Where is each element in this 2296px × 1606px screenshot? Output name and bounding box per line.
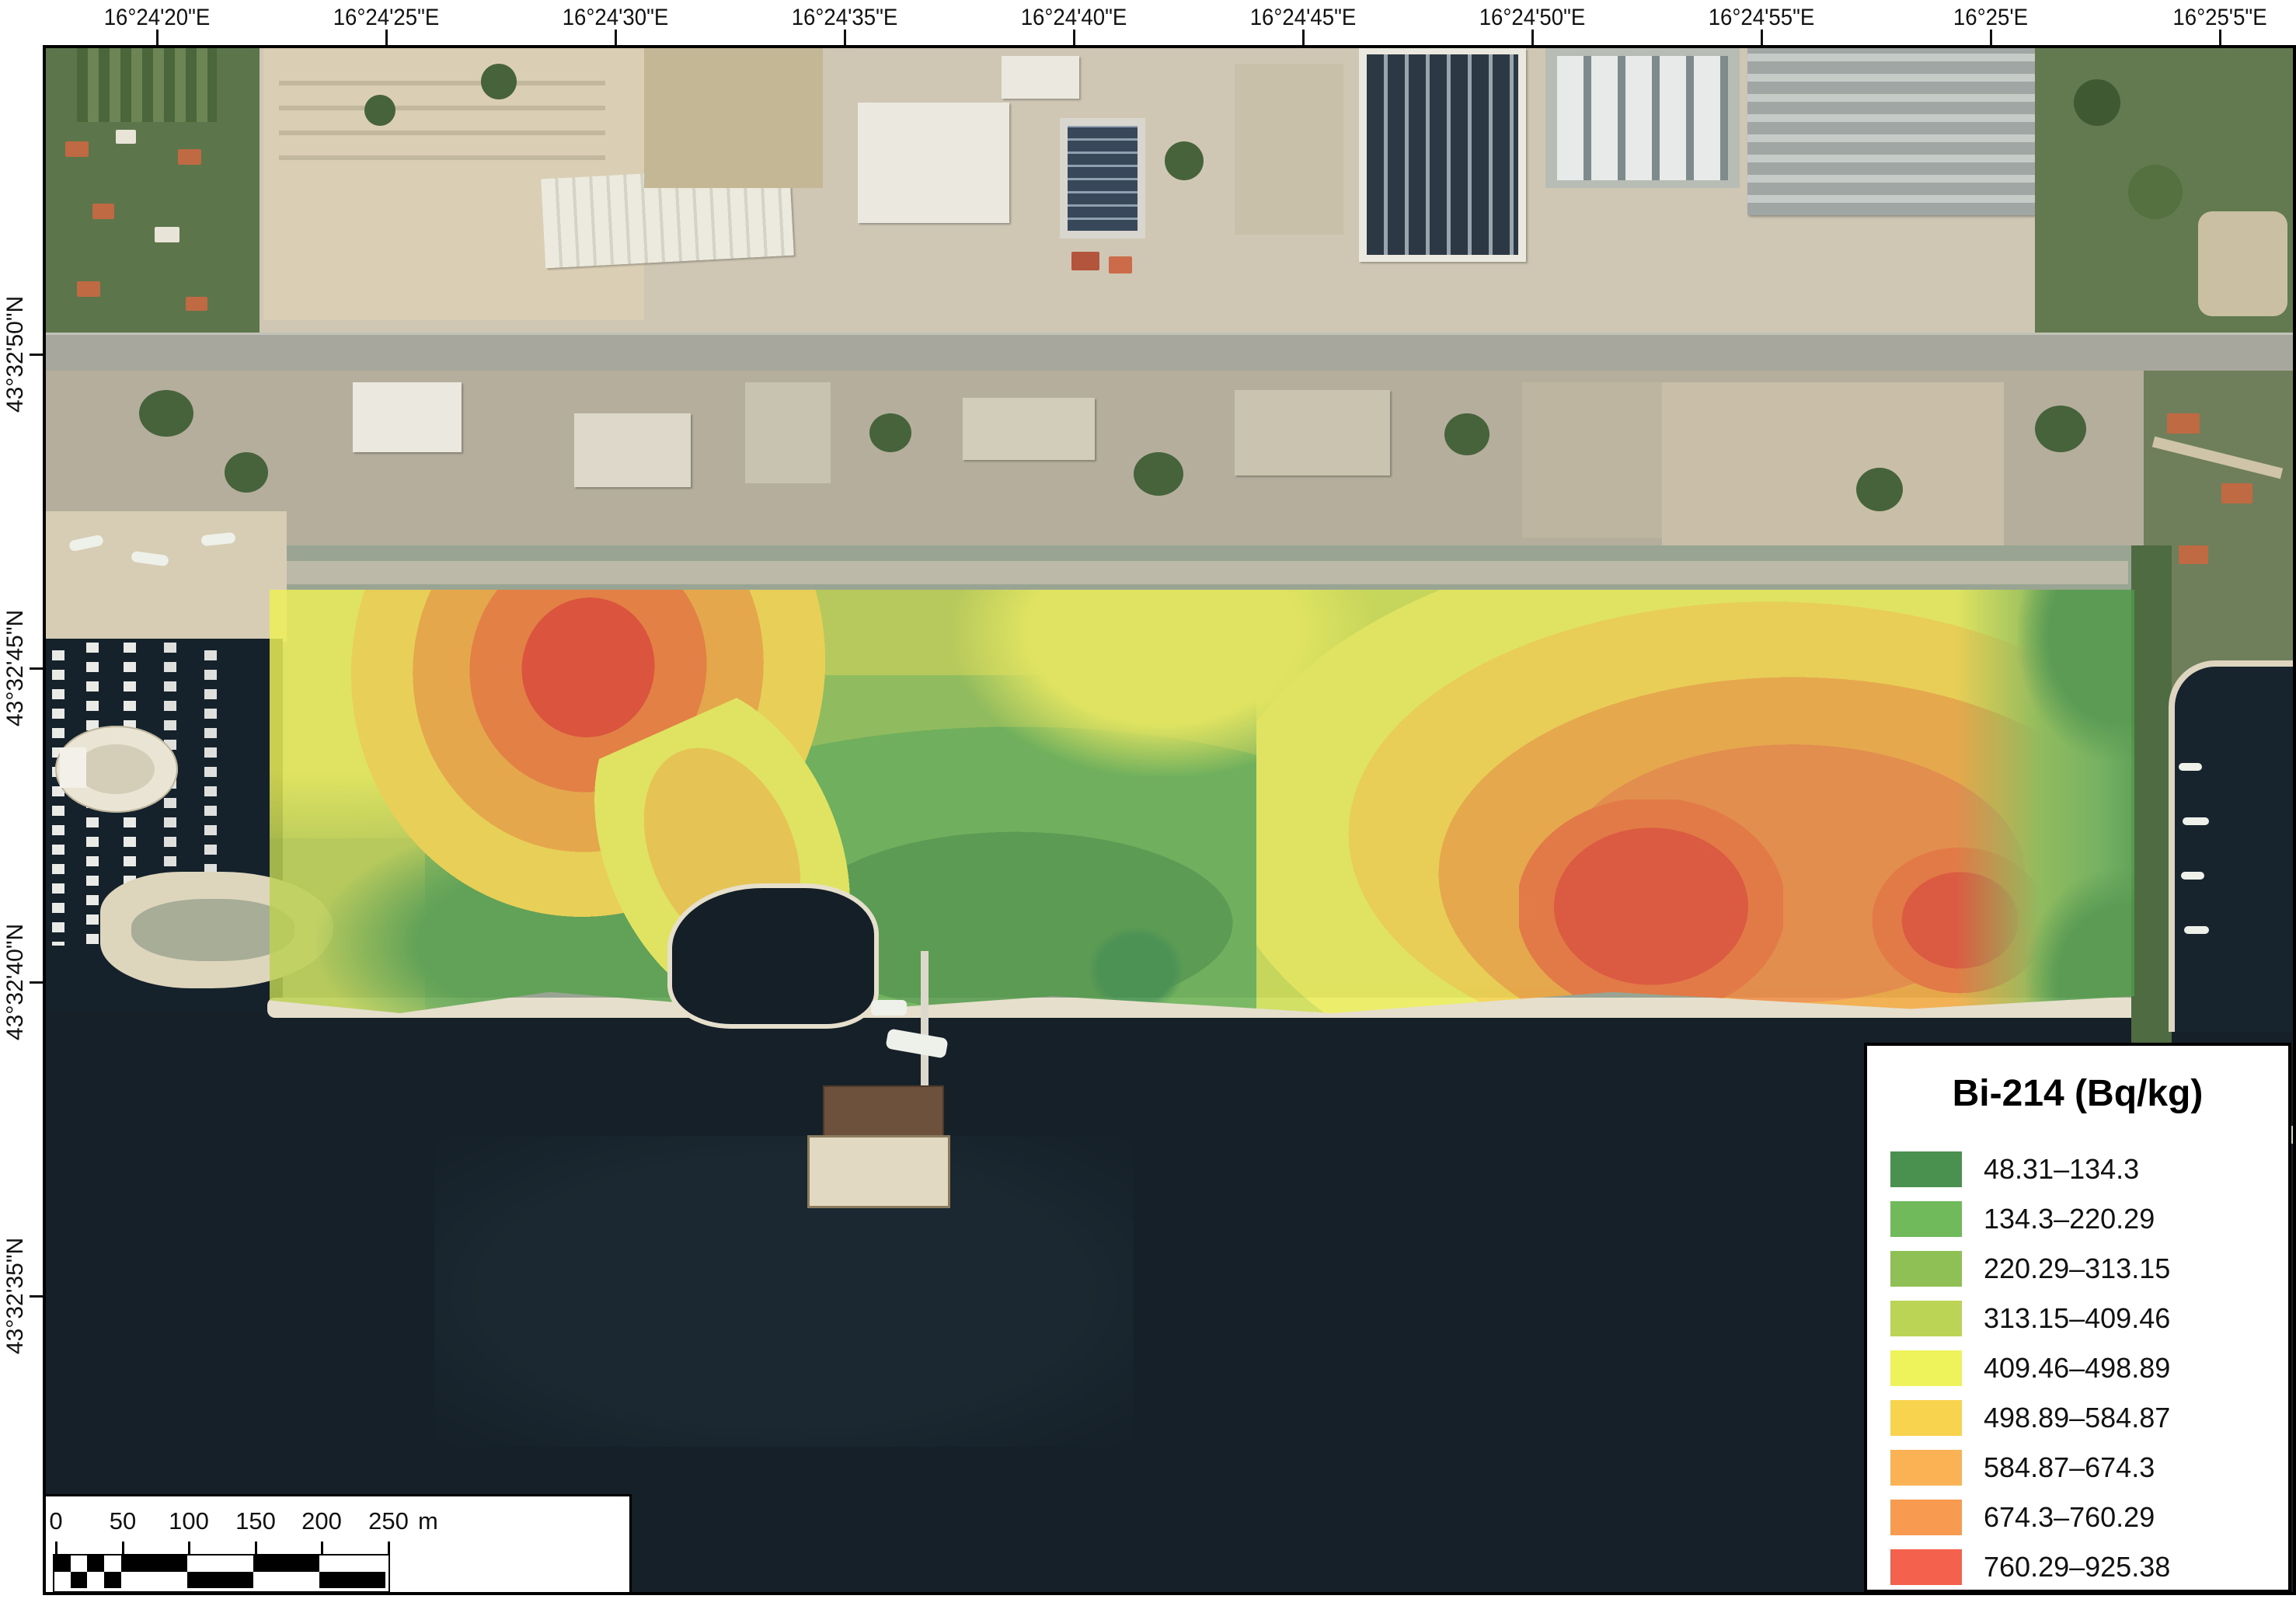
satellite-detail xyxy=(2219,30,2221,47)
satellite-detail xyxy=(2128,165,2183,219)
satellite-detail xyxy=(353,382,462,452)
map-canvas: 0 50 100 150 200 250 m xyxy=(43,45,2296,1595)
floating-dock xyxy=(823,1085,944,1138)
satellite-detail xyxy=(1990,30,1992,47)
satellite-detail xyxy=(319,1572,385,1588)
legend-swatch xyxy=(1890,1500,1962,1535)
axis-label: 16°24'50"E xyxy=(1479,5,1586,31)
satellite-detail xyxy=(1761,30,1763,47)
axis-label: 16°24'30"E xyxy=(563,5,669,31)
satellite-detail xyxy=(2179,763,2202,771)
satellite-detail xyxy=(385,30,388,47)
satellite-detail xyxy=(77,48,217,122)
axis-label: 16°24'35"E xyxy=(792,5,898,31)
satellite-detail xyxy=(1073,30,1075,47)
satellite-detail xyxy=(2131,545,2172,1128)
satellite-detail xyxy=(178,149,201,165)
satellite-detail xyxy=(2167,413,2200,434)
scale-label: 0 xyxy=(49,1507,62,1535)
scale-label: 200 xyxy=(301,1507,342,1535)
satellite-detail xyxy=(1002,56,1079,99)
satellite-detail xyxy=(963,398,1095,460)
satellite-detail xyxy=(186,297,207,311)
satellite-detail xyxy=(388,1542,390,1554)
legend-label: 498.89–584.87 xyxy=(1984,1402,2170,1434)
scale-bar: 0 50 100 150 200 250 m xyxy=(43,1494,632,1595)
satellite-detail xyxy=(1235,390,1390,476)
satellite-detail xyxy=(2179,545,2208,564)
satellite-detail xyxy=(55,1542,57,1554)
satellite-detail xyxy=(644,48,823,188)
satellite-detail xyxy=(104,1572,121,1588)
harbor-inlet xyxy=(667,883,879,1029)
axis-label: 16°24'55"E xyxy=(1709,5,1815,31)
satellite-detail xyxy=(188,1542,190,1554)
legend-swatch xyxy=(1890,1400,1962,1436)
satellite-detail xyxy=(2183,817,2209,825)
satellite-detail xyxy=(279,561,2128,584)
axis-label: 43°32'50"N xyxy=(2,238,30,471)
satellite-detail xyxy=(1134,452,1183,496)
map-figure: 16°24'20"E 16°24'25"E 16°24'30"E 16°24'3… xyxy=(0,0,2296,1606)
satellite-detail xyxy=(1662,382,2004,561)
satellite-detail xyxy=(1165,141,1204,180)
axis-label: 43°32'40"N xyxy=(2,866,30,1099)
satellite-detail xyxy=(155,227,179,242)
satellite-detail xyxy=(122,1542,124,1554)
satellite-detail xyxy=(65,141,89,157)
scale-bar-graphic xyxy=(53,1554,390,1593)
satellite-detail xyxy=(139,390,193,437)
satellite-detail xyxy=(279,71,605,180)
satellite-detail xyxy=(1444,413,1489,455)
satellite-detail xyxy=(121,1555,187,1572)
legend-swatch xyxy=(1890,1151,1962,1187)
satellite-detail xyxy=(60,747,86,788)
satellite-detail xyxy=(156,30,159,47)
legend-swatch xyxy=(1890,1549,1962,1585)
low-zone-circle xyxy=(1090,928,1182,1011)
scale-label: 150 xyxy=(235,1507,276,1535)
legend-label: 409.46–498.89 xyxy=(1984,1352,2170,1385)
satellite-detail xyxy=(858,103,1009,223)
satellite-detail xyxy=(2221,483,2252,503)
satellite-detail xyxy=(1367,54,1518,255)
satellite-detail xyxy=(1068,126,1138,231)
axis-label: 16°24'20"E xyxy=(104,5,211,31)
marina-shore xyxy=(46,511,287,642)
legend-title: Bi-214 (Bq/kg) xyxy=(1867,1072,2288,1115)
satellite-detail xyxy=(321,1542,323,1554)
satellite-detail xyxy=(92,204,114,219)
satellite-detail xyxy=(871,1000,907,1016)
satellite-detail xyxy=(52,650,64,946)
satellite-detail xyxy=(1747,48,2039,215)
satellite-detail xyxy=(71,1572,87,1588)
axis-label: 16°25'5"E xyxy=(2172,5,2266,31)
satellite-detail xyxy=(574,413,691,487)
satellite-detail xyxy=(2035,406,2086,452)
satellite-detail xyxy=(77,744,155,794)
scale-unit: m xyxy=(418,1507,438,1535)
satellite-detail xyxy=(1109,256,1132,273)
axis-label: 16°25'E xyxy=(1953,5,2028,31)
scale-label: 250 xyxy=(368,1507,409,1535)
legend-label: 584.87–674.3 xyxy=(1984,1451,2155,1484)
legend-swatch xyxy=(1890,1350,1962,1386)
legend-label: 220.29–313.15 xyxy=(1984,1252,2170,1285)
satellite-detail xyxy=(434,1136,1134,1447)
satellite-detail xyxy=(844,30,846,47)
satellite-detail xyxy=(2184,926,2209,934)
legend-label: 674.3–760.29 xyxy=(1984,1501,2155,1534)
heatmap-overlay xyxy=(270,590,2134,1013)
hotspot-east xyxy=(1519,800,1783,1013)
legend-label: 48.31–134.3 xyxy=(1984,1153,2139,1186)
axis-label: 43°32'35"N xyxy=(2,1179,30,1413)
axis-label: 16°24'40"E xyxy=(1021,5,1127,31)
legend-label: 313.15–409.46 xyxy=(1984,1302,2170,1335)
satellite-detail xyxy=(869,413,911,452)
satellite-detail xyxy=(255,1542,257,1554)
legend-swatch xyxy=(1890,1251,1962,1287)
right-cove xyxy=(2169,660,2296,1032)
satellite-detail xyxy=(116,130,136,144)
axis-label: 16°24'25"E xyxy=(333,5,440,31)
satellite-detail xyxy=(1557,56,1728,180)
legend-swatch xyxy=(1890,1201,1962,1237)
satellite-detail xyxy=(1531,30,1534,47)
satellite-detail xyxy=(1071,252,1099,270)
satellite-detail xyxy=(1856,468,1903,511)
satellite-detail xyxy=(54,1555,71,1572)
satellite-detail xyxy=(1235,64,1343,235)
scale-label: 100 xyxy=(169,1507,209,1535)
legend-label: 760.29–925.38 xyxy=(1984,1551,2170,1583)
satellite-detail xyxy=(225,452,268,493)
satellite-detail xyxy=(745,382,831,483)
scale-label: 50 xyxy=(110,1507,136,1535)
axis-label: 43°32'45"N xyxy=(2,552,30,785)
satellite-detail xyxy=(253,1555,319,1572)
satellite-detail xyxy=(481,64,517,99)
legend-label: 134.3–220.29 xyxy=(1984,1203,2155,1235)
satellite-detail xyxy=(2074,79,2120,126)
satellite-detail xyxy=(77,281,100,297)
road xyxy=(46,333,2293,373)
satellite-detail xyxy=(87,1555,104,1572)
satellite-detail xyxy=(807,1135,950,1208)
satellite-detail xyxy=(2198,211,2287,316)
satellite-detail xyxy=(2181,872,2204,880)
satellite-detail xyxy=(364,95,395,126)
satellite-detail xyxy=(615,30,617,47)
legend-swatch xyxy=(1890,1450,1962,1486)
legend: Bi-214 (Bq/kg) 48.31–134.3 134.3–220.29 … xyxy=(1864,1043,2291,1593)
axis-label: 16°24'45"E xyxy=(1250,5,1357,31)
legend-swatch xyxy=(1890,1301,1962,1336)
satellite-detail xyxy=(1302,30,1305,47)
satellite-detail xyxy=(187,1572,253,1588)
